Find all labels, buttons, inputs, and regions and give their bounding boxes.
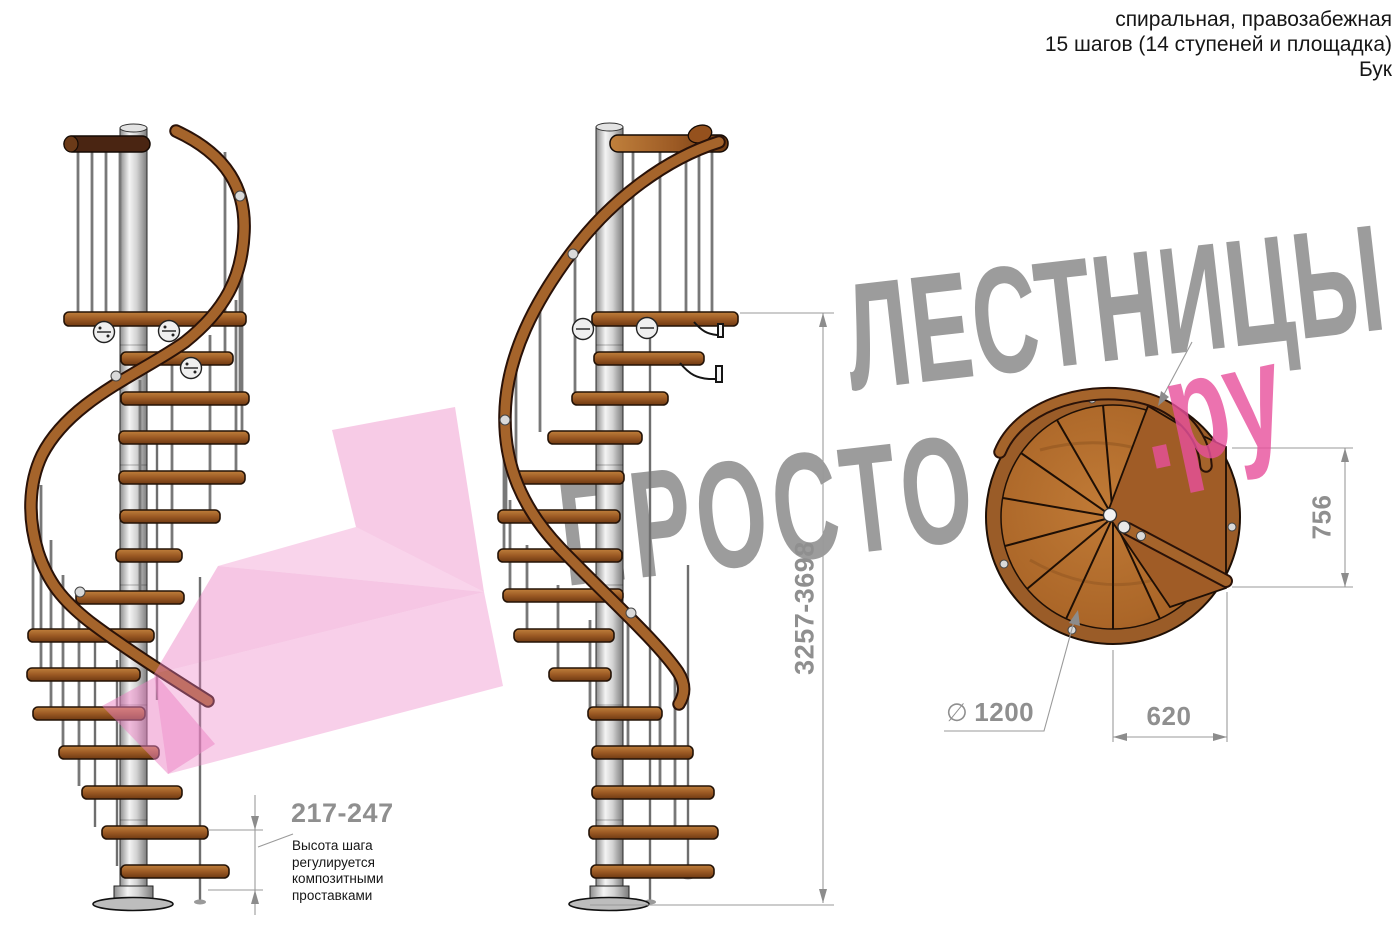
plan-width-label: 620 <box>1139 701 1199 732</box>
total-height-label: 3257-3698 <box>790 541 821 675</box>
step-height-note: Высота шага регулируется композитными пр… <box>292 838 383 904</box>
title-block: спиральная, правозабежная 15 шагов (14 с… <box>1045 7 1392 82</box>
diameter-symbol: ∅ <box>946 699 968 727</box>
blueprint-page: ЛЕСТНИЦЫ ПРОСТО .tread{fill:url(#wood);s… <box>0 0 1400 951</box>
plan-depth-label: 756 <box>1307 495 1338 540</box>
title-material: Бук <box>1045 57 1392 82</box>
title-steps: 15 шагов (14 ступеней и площадка) <box>1045 32 1392 57</box>
left-elevation-drawing <box>27 124 249 911</box>
title-type: спиральная, правозабежная <box>1045 7 1392 32</box>
diameter-label: ∅1200 <box>946 697 1034 728</box>
front-elevation-drawing <box>498 122 738 910</box>
diameter-value: 1200 <box>974 697 1034 727</box>
step-height-dimension <box>208 795 293 915</box>
step-height-label: 217-247 <box>291 798 394 829</box>
